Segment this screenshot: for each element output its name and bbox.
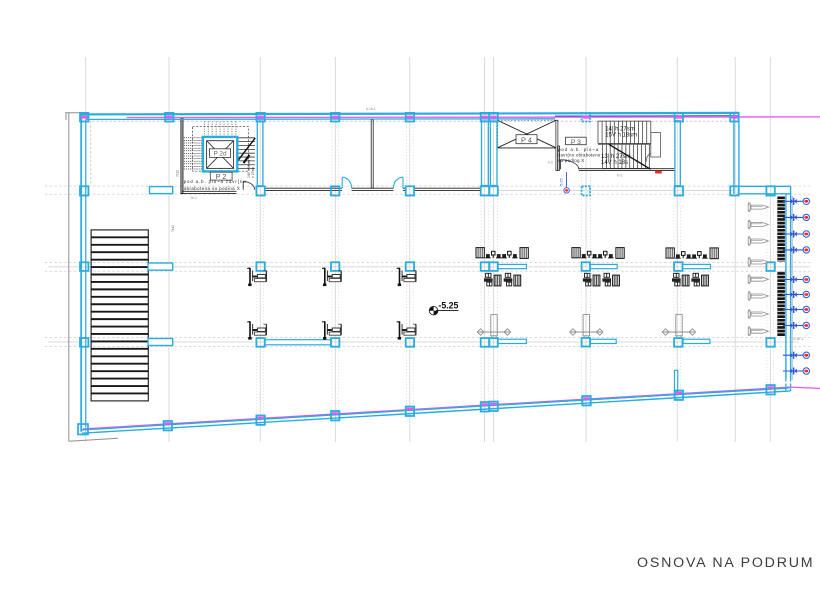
svg-text:zavr{no obraboteno: zavr{no obraboteno	[558, 153, 601, 158]
svg-text:-5.25: -5.25	[438, 300, 458, 310]
svg-text:Jb-1: Jb-1	[190, 196, 197, 200]
svg-text:obrabotena so podina X: obrabotena so podina X	[184, 186, 240, 191]
svg-text:7x12: 7x12	[176, 170, 180, 177]
svg-text:-5.25: -5.25	[560, 178, 564, 187]
svg-text:14V h 18s: 14V h 18s	[601, 160, 628, 166]
svg-text:b-2: b-2	[548, 160, 553, 164]
svg-text:h 27sm: h 27sm	[251, 167, 255, 178]
svg-text:b-1b-1: b-1b-1	[366, 107, 376, 111]
svg-text:pod a.b. plo~a: pod a.b. plo~a	[558, 147, 599, 152]
svg-text:15V h 18sm: 15V h 18sm	[605, 132, 637, 138]
svg-text:b-1b-1: b-1b-1	[794, 337, 804, 341]
svg-text:P 2d: P 2d	[213, 151, 226, 158]
svg-text:7x12: 7x12	[171, 225, 175, 232]
svg-text:OSNOVA NA PODRUM: OSNOVA NA PODRUM	[637, 555, 815, 571]
svg-text:P 4: P 4	[521, 135, 532, 144]
svg-text:P 3: P 3	[571, 139, 581, 146]
svg-text:so podlog X: so podlog X	[558, 158, 584, 163]
svg-text:b-3: b-3	[617, 174, 622, 178]
svg-text:13| h 27sm: 13| h 27sm	[601, 154, 631, 160]
svg-text:pod a.b. plo~a zavr{no: pod a.b. plo~a zavr{no	[184, 179, 247, 184]
